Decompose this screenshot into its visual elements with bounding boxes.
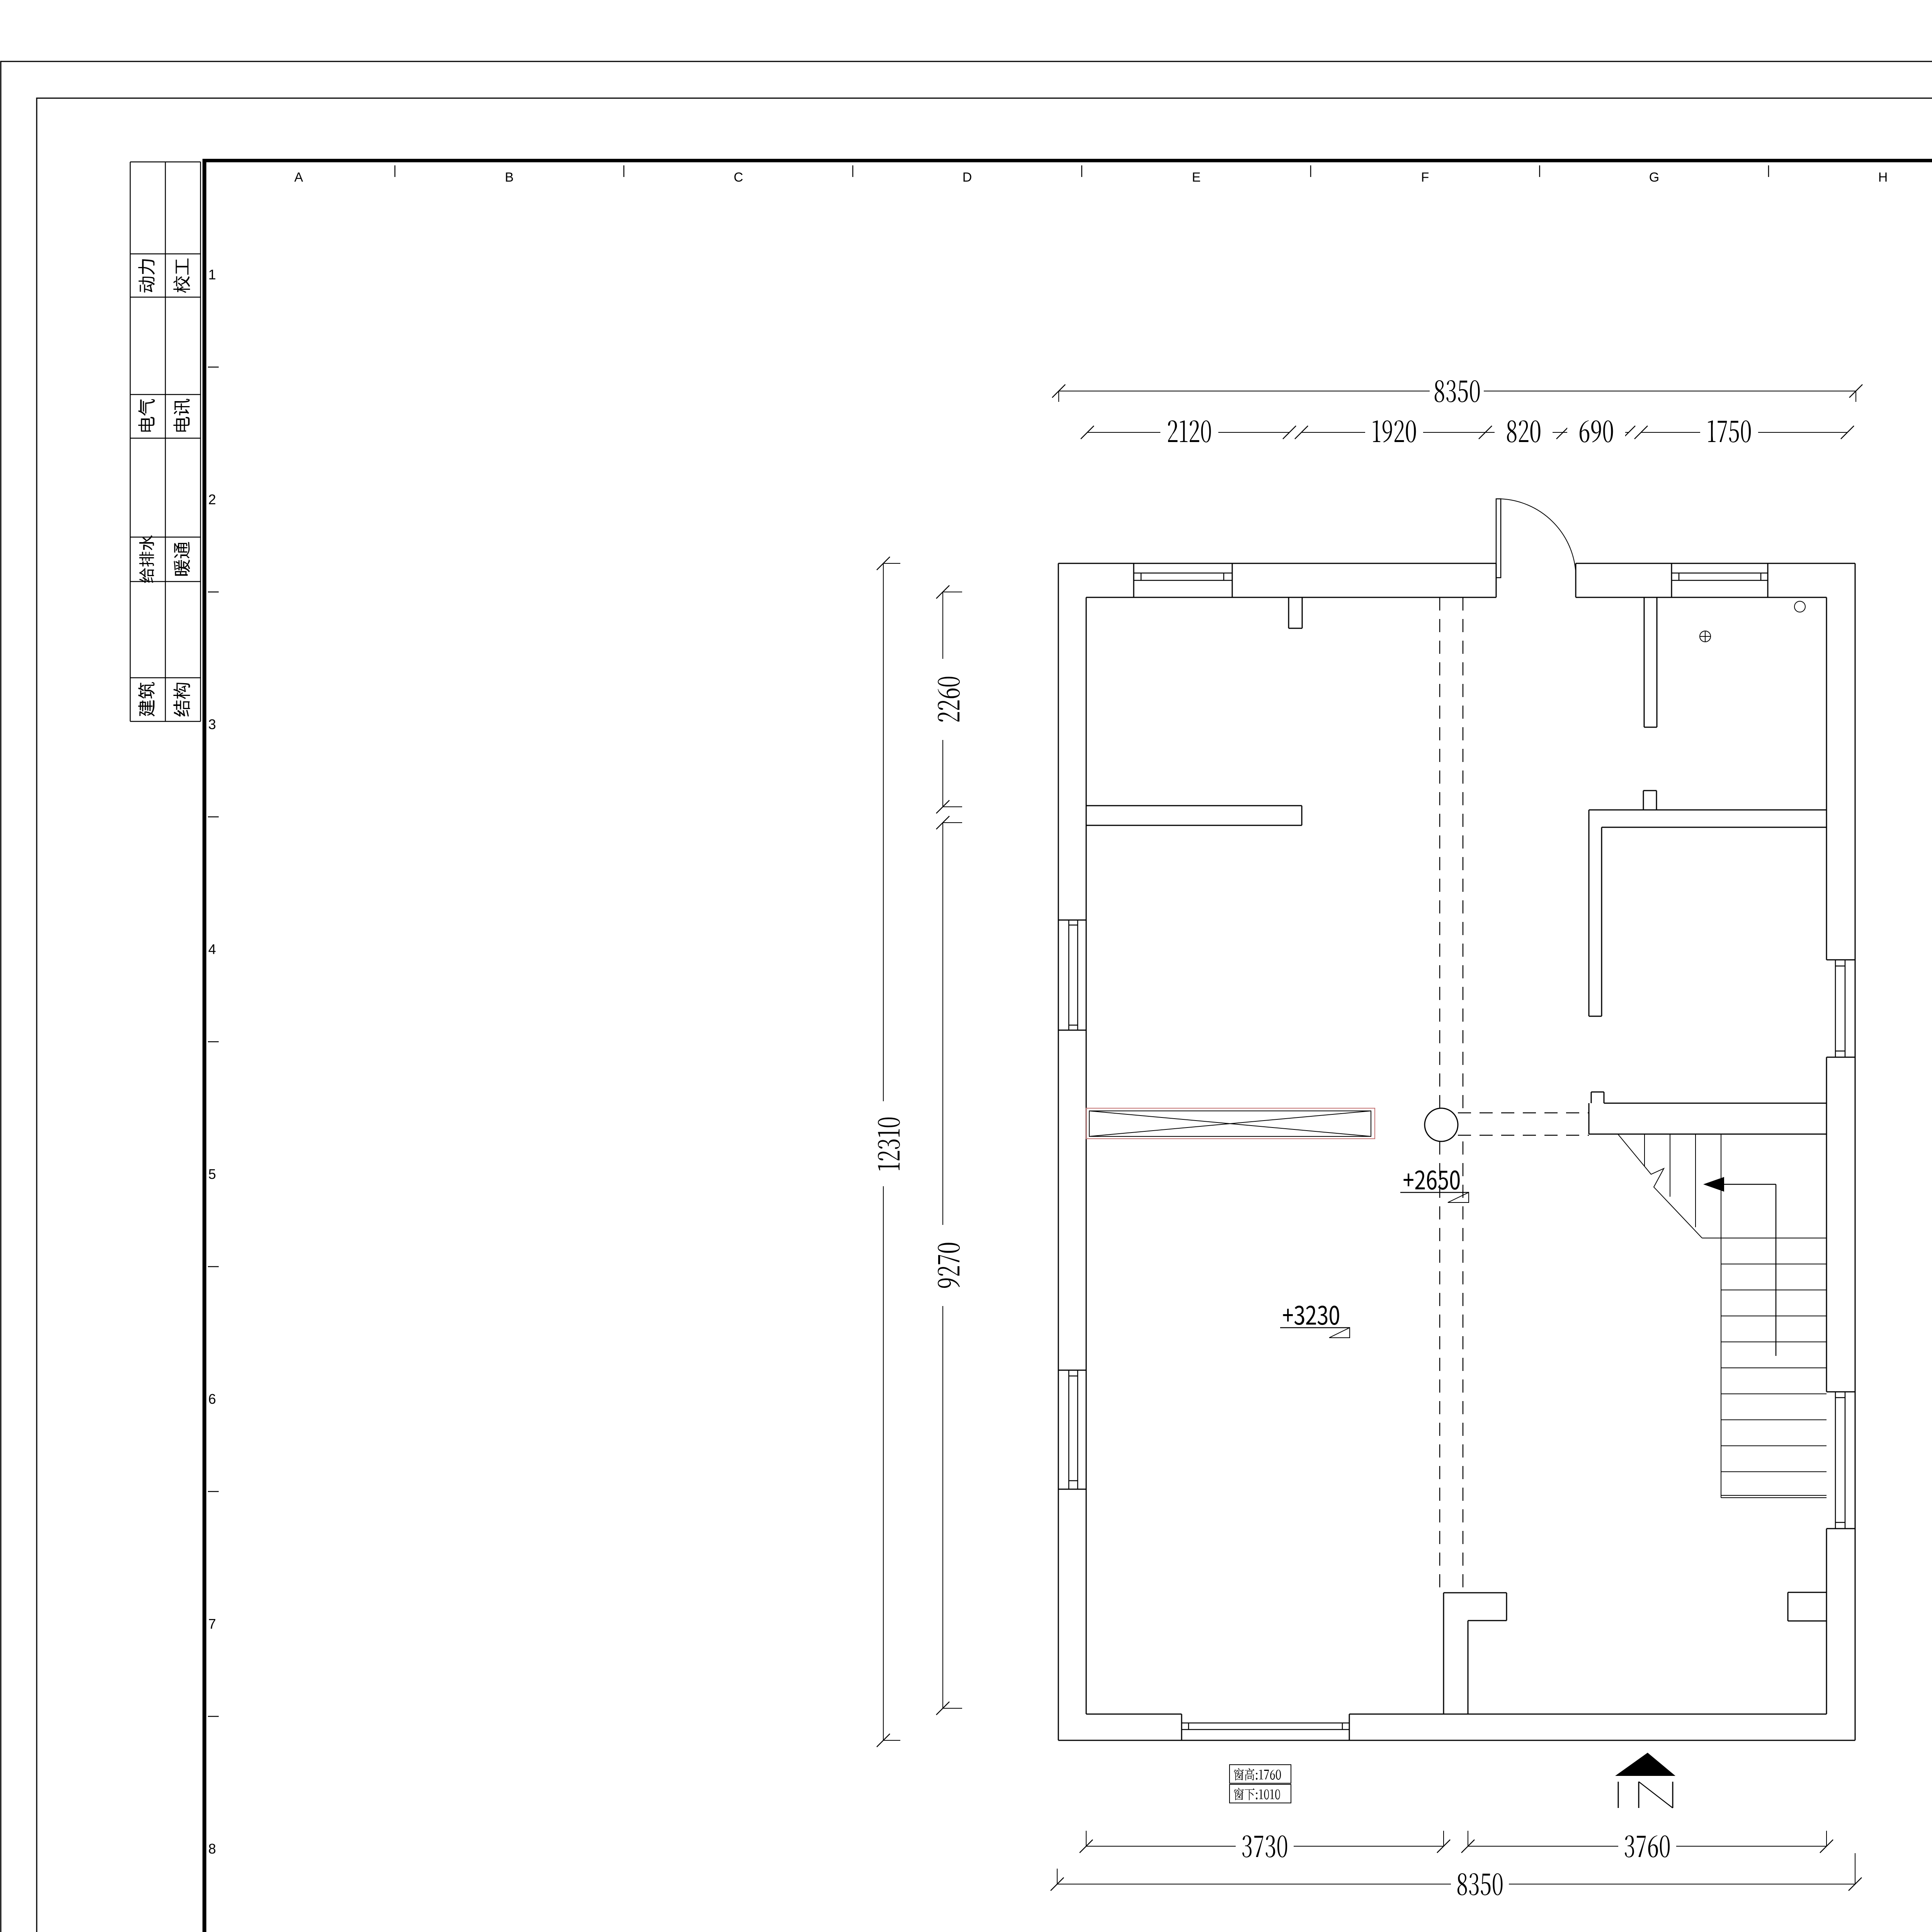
svg-text:E: E xyxy=(1192,170,1201,185)
svg-text:8: 8 xyxy=(208,1841,216,1857)
svg-text:D: D xyxy=(963,170,972,185)
svg-text:5: 5 xyxy=(208,1166,216,1182)
svg-text:F: F xyxy=(1421,170,1429,185)
svg-text:H: H xyxy=(1878,170,1888,185)
svg-text:A: A xyxy=(294,170,303,185)
svg-text:3: 3 xyxy=(208,716,216,732)
svg-text:6: 6 xyxy=(208,1391,216,1407)
svg-text:4: 4 xyxy=(208,941,216,957)
svg-text:C: C xyxy=(734,170,743,185)
svg-text:G: G xyxy=(1649,170,1659,185)
svg-text:1: 1 xyxy=(208,267,216,282)
svg-text:7: 7 xyxy=(208,1616,216,1632)
svg-text:B: B xyxy=(505,170,514,185)
svg-text:2: 2 xyxy=(208,492,216,507)
